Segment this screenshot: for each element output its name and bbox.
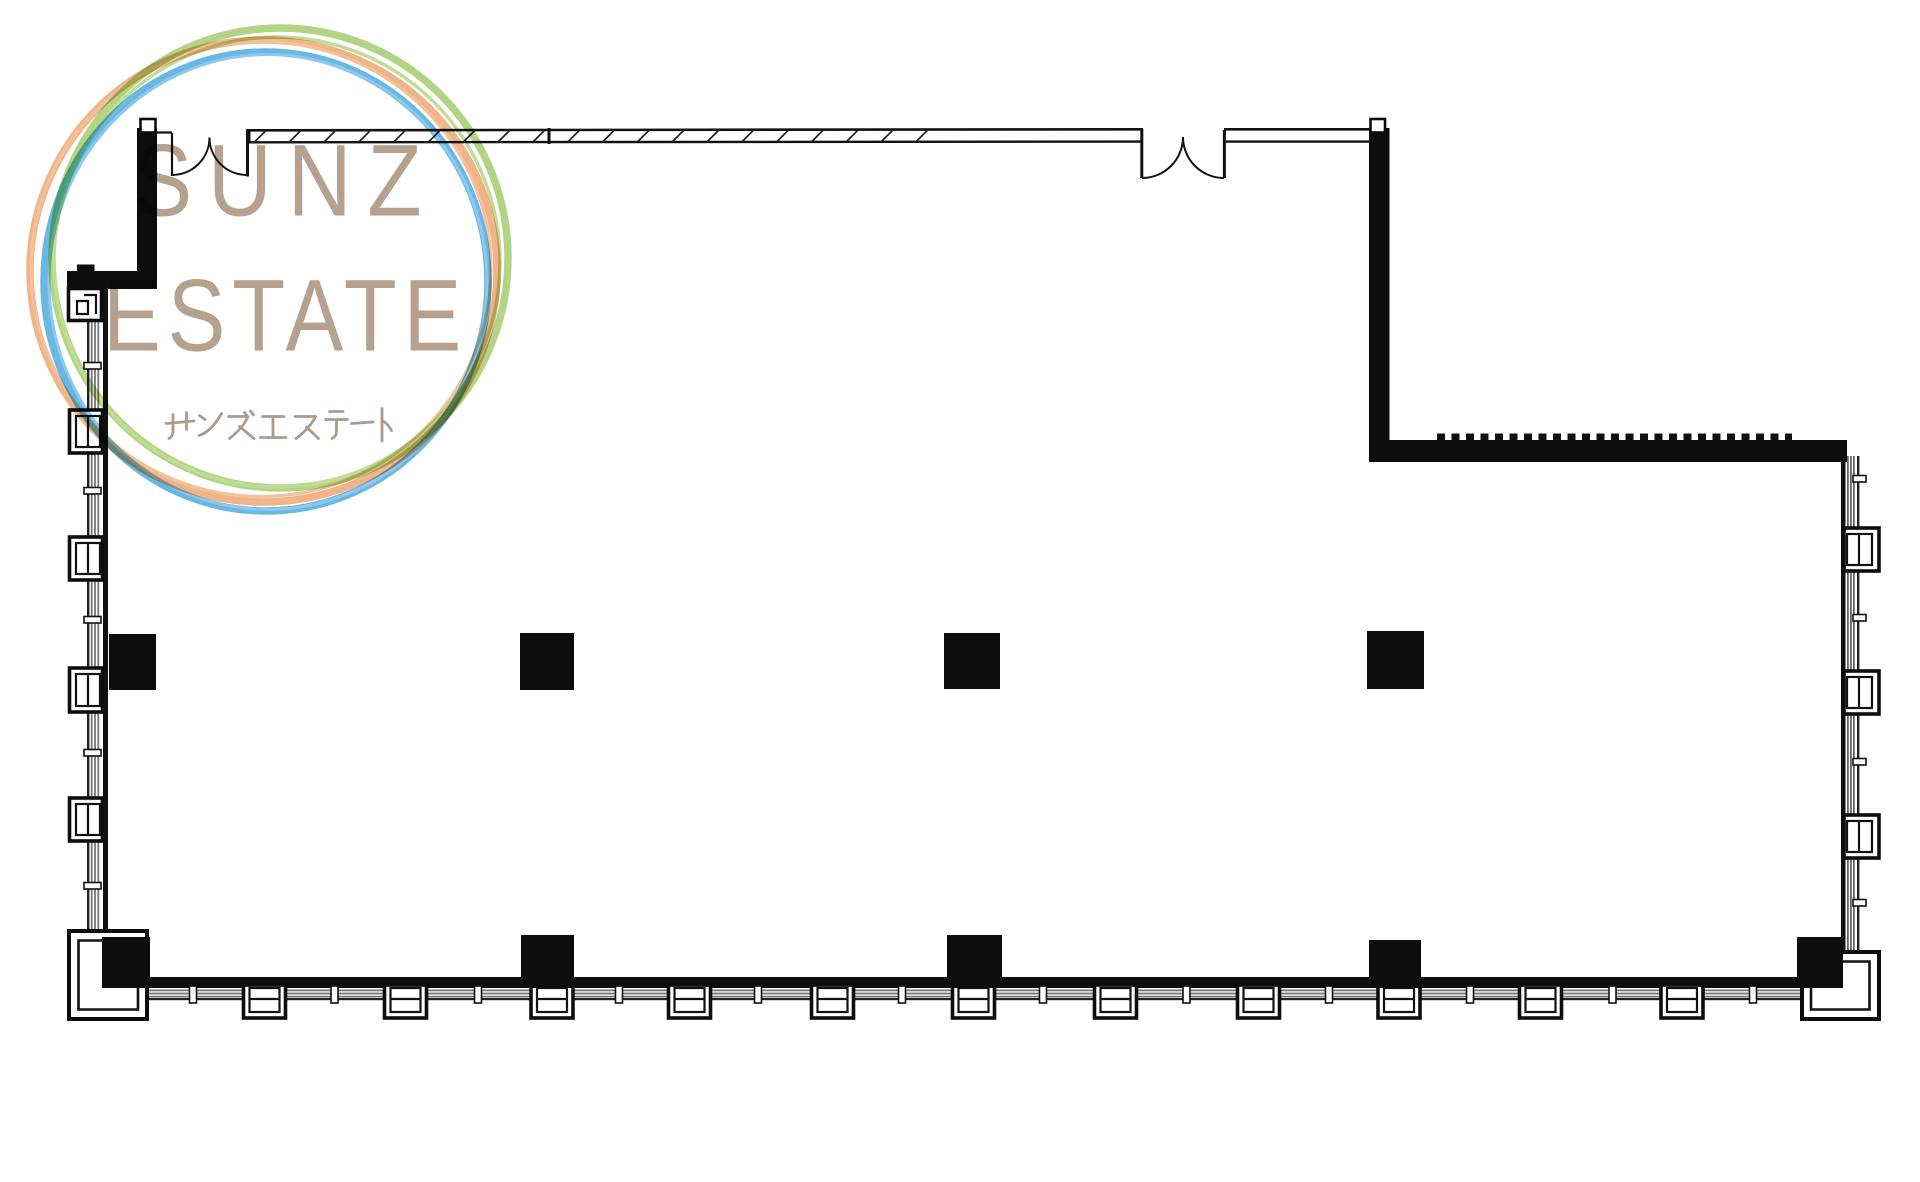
svg-text:SUNZ: SUNZ (133, 124, 437, 238)
svg-text:ESTATE: ESTATE (103, 259, 468, 373)
